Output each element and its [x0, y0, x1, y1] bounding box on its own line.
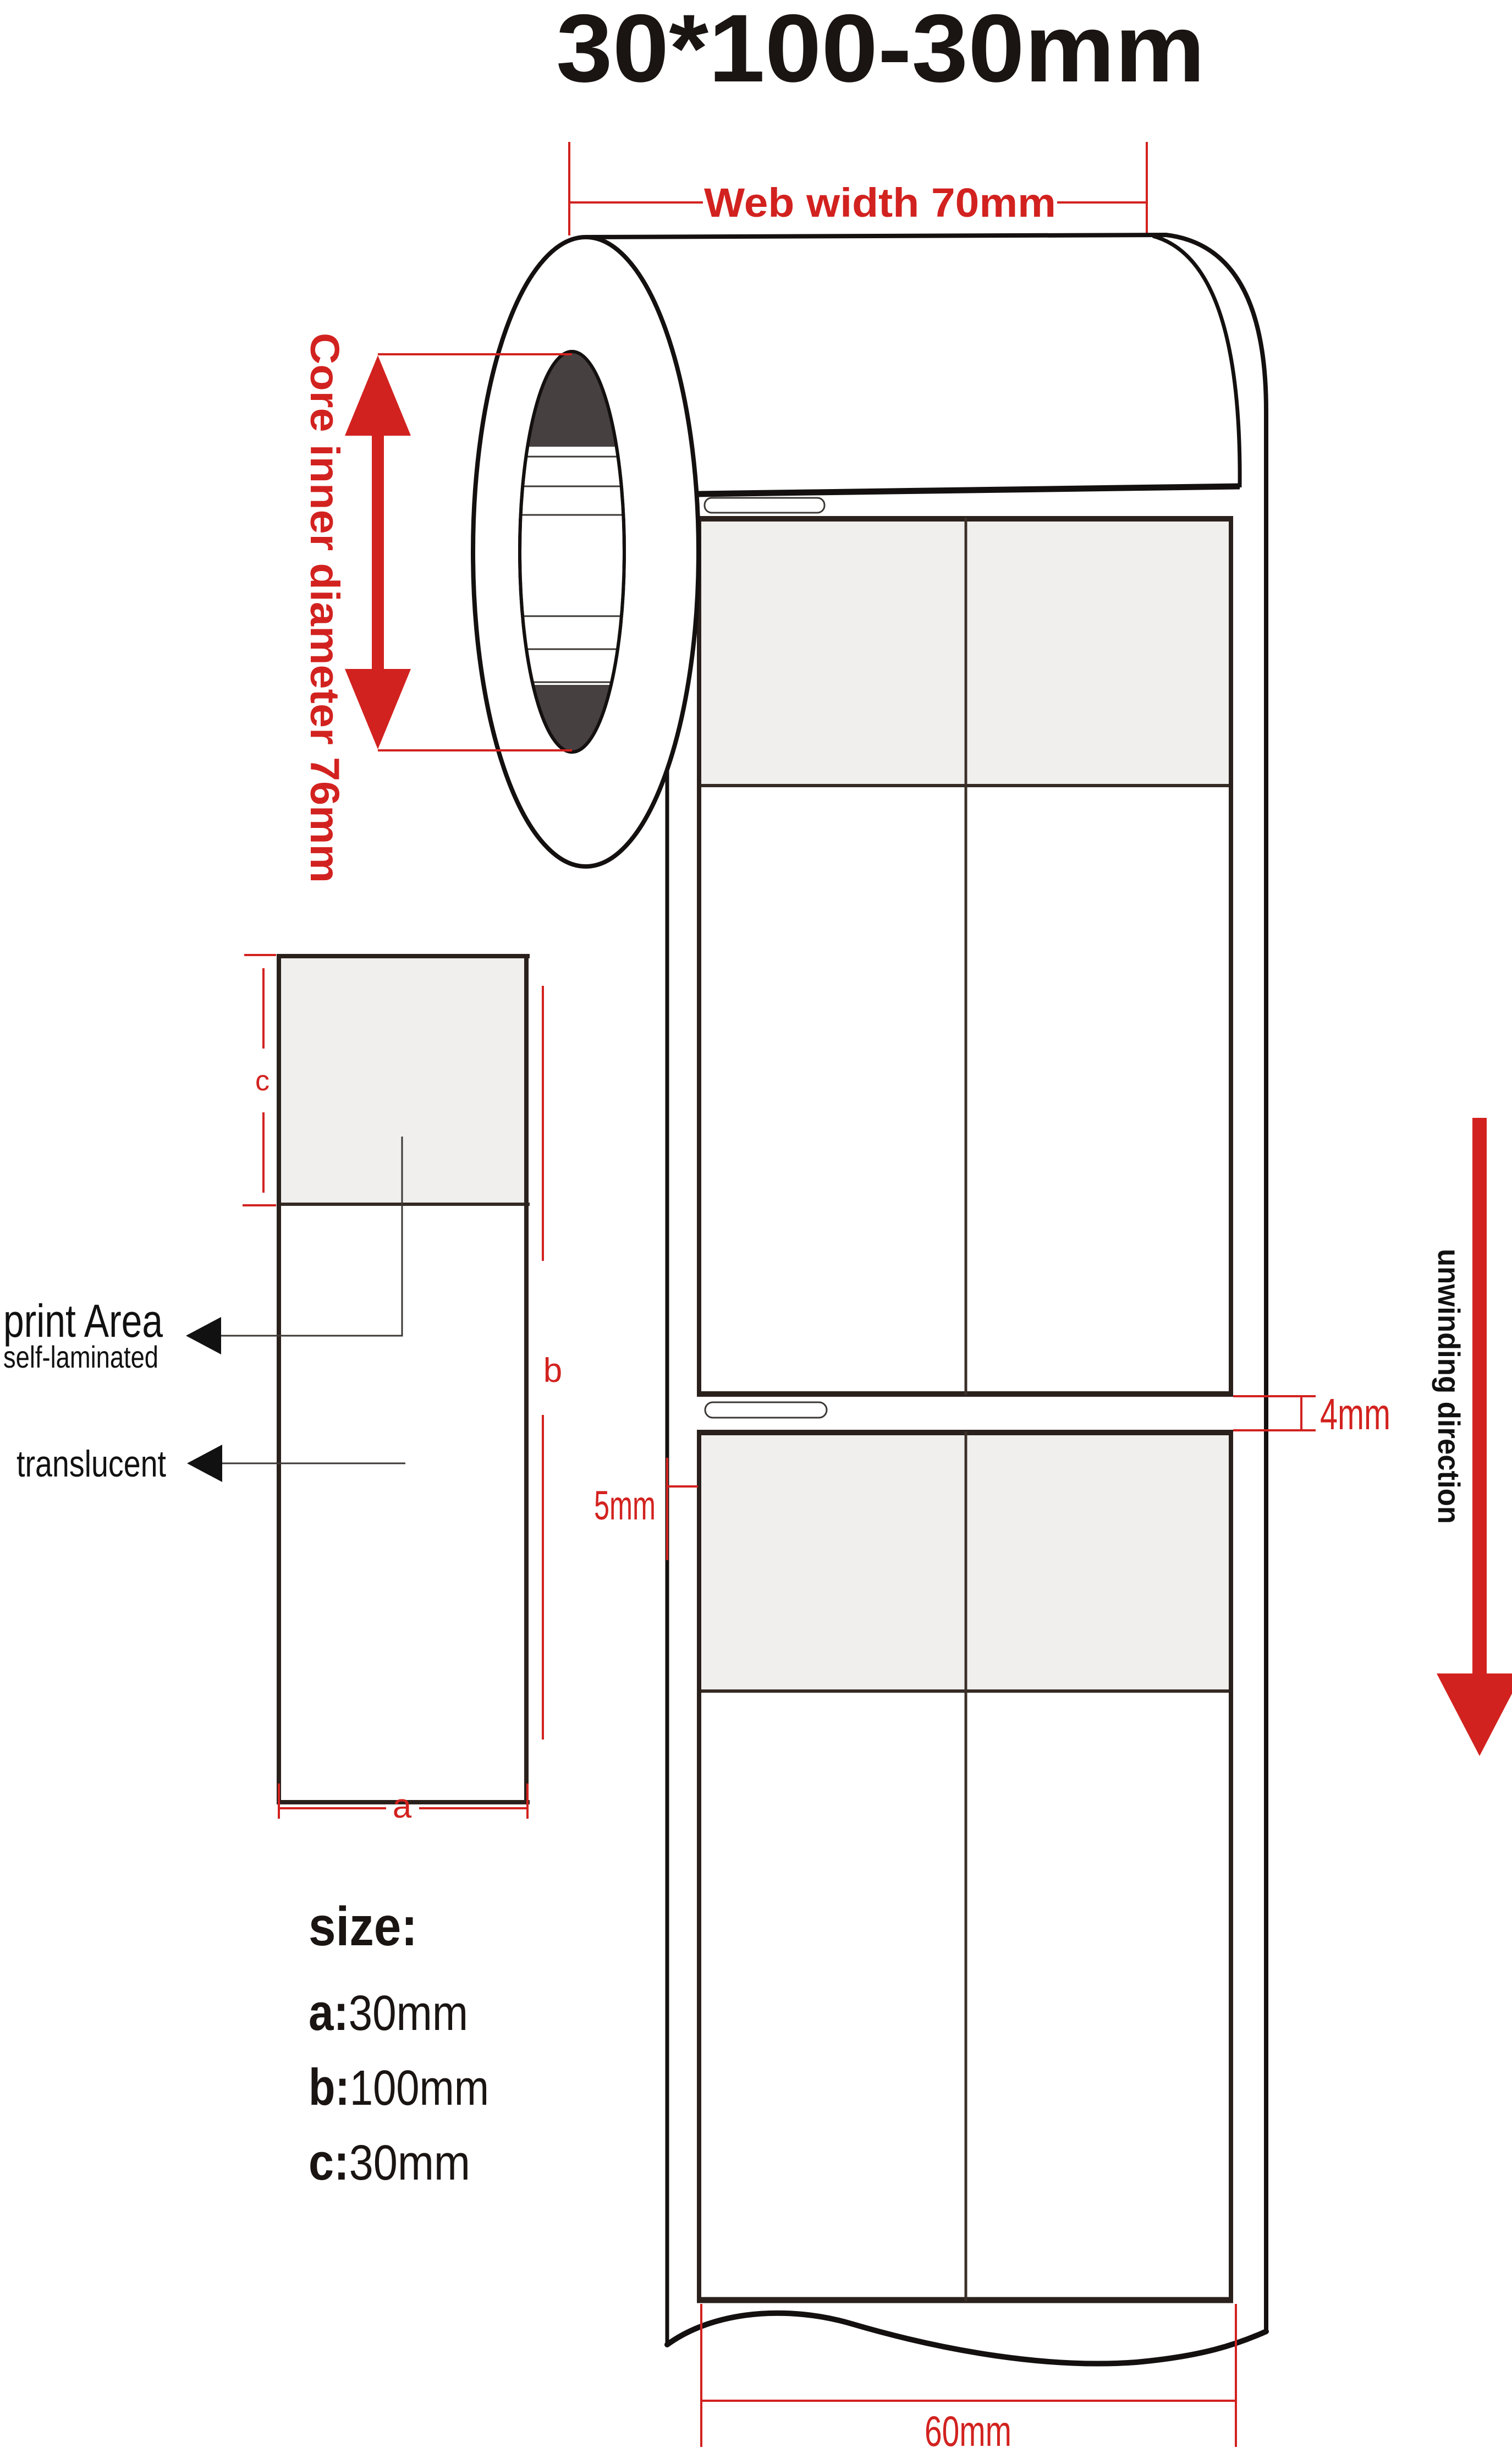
size-c-value: 30mm	[349, 2136, 470, 2191]
bottom-width-label: 60mm	[925, 2407, 1011, 2453]
core-diameter-label: Core inner diameter 76mm	[302, 333, 348, 883]
size-row-c: c:30mm	[309, 2133, 470, 2191]
print-area-label: print Area	[3, 1295, 163, 1347]
roll-end-disc	[473, 237, 699, 866]
self-laminated-label: self-laminated	[3, 1340, 158, 1374]
dim-a-label: a	[393, 1787, 412, 1825]
edge-margin-label: 5mm	[594, 1483, 656, 1528]
size-heading: size:	[309, 1896, 417, 1957]
label-pair-2	[697, 1430, 1233, 2302]
dim-b-label: b	[543, 1352, 562, 1390]
roll-inner-corner-curve	[1153, 236, 1240, 487]
sensor-slot-top	[705, 498, 824, 513]
label-roll-spec-page: 30*100-30mm Web width 70mm	[0, 0, 1512, 2453]
edge-margin-dimension: 5mm	[594, 1458, 698, 1560]
label1-left-laminate-area	[699, 518, 964, 786]
size-a-value: 30mm	[349, 1986, 468, 2041]
roll-front-tangent-line	[697, 486, 1240, 494]
unwinding-arrowhead-down-icon	[1437, 1673, 1512, 1756]
size-b-prefix: b:	[309, 2058, 350, 2116]
gap-dimension: 4mm	[1233, 1390, 1390, 1439]
dim-c-label: c	[255, 1065, 270, 1097]
translucent-label: translucent	[17, 1443, 166, 1485]
translucent-arrowhead-icon	[187, 1445, 222, 1482]
size-block: size: a:30mm b:100mm c:30mm	[309, 1896, 489, 2191]
label-pair-1	[697, 517, 1233, 1396]
label2-right-laminate-area	[967, 1433, 1232, 1691]
label-roll-diagram: 30*100-30mm Web width 70mm	[0, 0, 1512, 2453]
web-width-label: Web width 70mm	[704, 180, 1056, 226]
print-area-arrowhead-icon	[186, 1317, 221, 1354]
web-width-dimension: Web width 70mm	[569, 142, 1147, 235]
size-a-prefix: a:	[309, 1983, 349, 2041]
web-strip	[667, 498, 1266, 2364]
page-title: 30*100-30mm	[556, 0, 1205, 102]
label2-left-laminate-area	[699, 1433, 964, 1691]
size-row-b: b:100mm	[309, 2058, 489, 2116]
gap-label: 4mm	[1320, 1390, 1390, 1439]
label1-right-laminate-area	[967, 518, 1232, 786]
unwinding-direction: unwinding direction	[1432, 1118, 1512, 1756]
core-dim-arrowhead-down-icon	[345, 669, 411, 749]
size-row-a: a:30mm	[309, 1983, 468, 2041]
label-detail-diagram: print Area self-laminated translucent c …	[3, 954, 562, 1825]
detail-laminate-area	[280, 956, 527, 1204]
core-dim-arrowhead-up-icon	[345, 355, 411, 436]
liner-tear-wave	[667, 2313, 1266, 2364]
size-c-prefix: c:	[309, 2133, 349, 2191]
sensor-slot-gap	[705, 1402, 827, 1418]
unwinding-direction-label: unwinding direction	[1432, 1249, 1466, 1524]
bottom-width-dimension: 60mm	[701, 2304, 1236, 2453]
size-b-value: 100mm	[350, 2061, 489, 2116]
